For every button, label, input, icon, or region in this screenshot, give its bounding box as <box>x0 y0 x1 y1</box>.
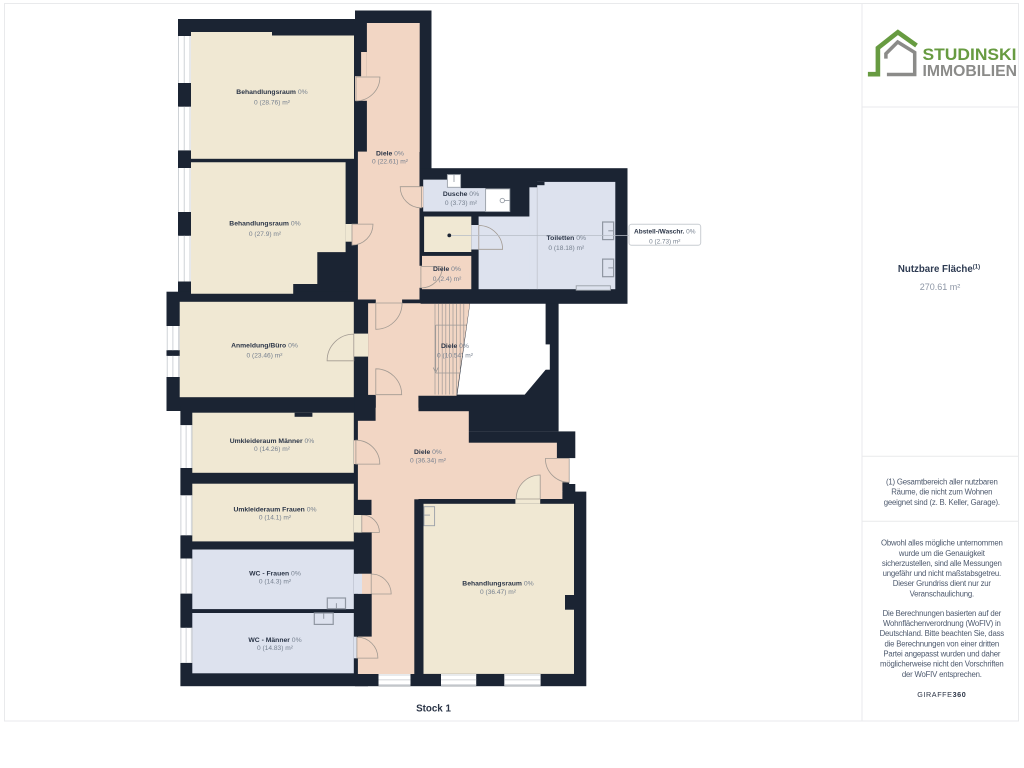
svg-text:0 (14.1) m²: 0 (14.1) m² <box>259 514 292 521</box>
svg-text:Veranschaulichung.: Veranschaulichung. <box>910 589 974 598</box>
svg-text:0 (14.83) m²: 0 (14.83) m² <box>257 645 294 652</box>
svg-text:Stock 1: Stock 1 <box>416 704 451 715</box>
svg-text:Dieser Grundriss dient nur zur: Dieser Grundriss dient nur zur <box>893 579 992 588</box>
svg-text:Dusche 0%: Dusche 0% <box>443 191 479 198</box>
svg-text:Diele 0%: Diele 0% <box>414 449 442 456</box>
svg-text:möglicherweise nicht den Vorsc: möglicherweise nicht den Vorschriften <box>880 660 1003 669</box>
svg-text:Umkleideraum Frauen 0%: Umkleideraum Frauen 0% <box>233 506 316 513</box>
svg-text:0 (36.34) m²: 0 (36.34) m² <box>410 458 447 465</box>
svg-text:Die Berechnungen basierten auf: Die Berechnungen basierten auf der <box>883 609 1002 618</box>
svg-text:ungefähr und nicht maßstabsget: ungefähr und nicht maßstabsgetreu. <box>883 569 1001 578</box>
svg-text:0 (10.54) m²: 0 (10.54) m² <box>437 352 474 359</box>
svg-text:0 (14.3) m²: 0 (14.3) m² <box>259 579 292 586</box>
svg-text:0 (27.9) m²: 0 (27.9) m² <box>249 231 282 238</box>
svg-text:Obwohl alles mögliche unternom: Obwohl alles mögliche unternommen <box>881 539 1003 548</box>
svg-text:die Berechnungen von einer dri: die Berechnungen von einer dritten <box>885 639 1000 648</box>
svg-text:0 (28.76) m²: 0 (28.76) m² <box>254 99 291 106</box>
svg-text:sicherzustellen, sind alle Mes: sicherzustellen, sind alle Messungen <box>882 559 1002 568</box>
svg-text:0 (2.73) m²: 0 (2.73) m² <box>649 239 680 246</box>
svg-text:0 (36.47) m²: 0 (36.47) m² <box>480 589 517 596</box>
svg-text:Toiletten 0%: Toiletten 0% <box>547 235 587 242</box>
svg-text:WC - Frauen 0%: WC - Frauen 0% <box>249 571 301 578</box>
svg-text:Behandlungsraum 0%: Behandlungsraum 0% <box>236 89 307 96</box>
svg-text:geeignet sind (z. B. Keller, G: geeignet sind (z. B. Keller, Garage). <box>884 498 1000 507</box>
svg-text:WC - Männer 0%: WC - Männer 0% <box>248 637 301 644</box>
svg-text:Deutschland. Bitte beachten Si: Deutschland. Bitte beachten Sie, dass <box>880 629 1005 638</box>
svg-text:0 (3.73) m²: 0 (3.73) m² <box>445 200 478 207</box>
svg-text:0 (23.46) m²: 0 (23.46) m² <box>247 352 284 359</box>
svg-text:270.61 m²: 270.61 m² <box>920 282 961 292</box>
svg-text:Umkleideraum Männer 0%: Umkleideraum Männer 0% <box>230 438 315 445</box>
svg-text:Räume, die nicht zum Wohnen: Räume, die nicht zum Wohnen <box>891 488 992 497</box>
svg-text:0 (22.61) m²: 0 (22.61) m² <box>372 159 409 166</box>
svg-text:GIRAFFE360: GIRAFFE360 <box>917 690 966 699</box>
svg-text:Wohnflächenverordnung (WoFIV): Wohnflächenverordnung (WoFIV) in <box>883 619 1001 628</box>
svg-text:IMMOBILIEN: IMMOBILIEN <box>923 63 1018 80</box>
svg-text:Abstell-/Waschr. 0%: Abstell-/Waschr. 0% <box>634 229 696 236</box>
svg-text:STUDINSKI: STUDINSKI <box>923 46 1017 64</box>
svg-text:Diele 0%: Diele 0% <box>376 150 404 157</box>
svg-text:Diele 0%: Diele 0% <box>433 266 461 273</box>
svg-text:Behandlungsraum 0%: Behandlungsraum 0% <box>229 221 300 228</box>
svg-text:wurde um die Genauigkeit: wurde um die Genauigkeit <box>898 549 986 558</box>
svg-text:0 (14.26) m²: 0 (14.26) m² <box>254 446 291 453</box>
svg-text:Partei angepasst wurden und da: Partei angepasst wurden und daher <box>883 650 1001 659</box>
svg-text:Behandlungsraum 0%: Behandlungsraum 0% <box>462 581 533 588</box>
svg-text:(1) Gesamtbereich aller nutzba: (1) Gesamtbereich aller nutzbaren <box>886 478 998 487</box>
svg-text:0 (18.18) m²: 0 (18.18) m² <box>548 245 585 252</box>
svg-text:Anmeldung/Büro 0%: Anmeldung/Büro 0% <box>231 342 298 349</box>
svg-text:0 (2.4) m²: 0 (2.4) m² <box>433 276 462 283</box>
svg-text:Diele 0%: Diele 0% <box>441 343 469 350</box>
svg-text:der WoFIV entsprechen.: der WoFIV entsprechen. <box>902 670 982 679</box>
svg-text:Nutzbare Fläche(1): Nutzbare Fläche(1) <box>898 264 980 275</box>
